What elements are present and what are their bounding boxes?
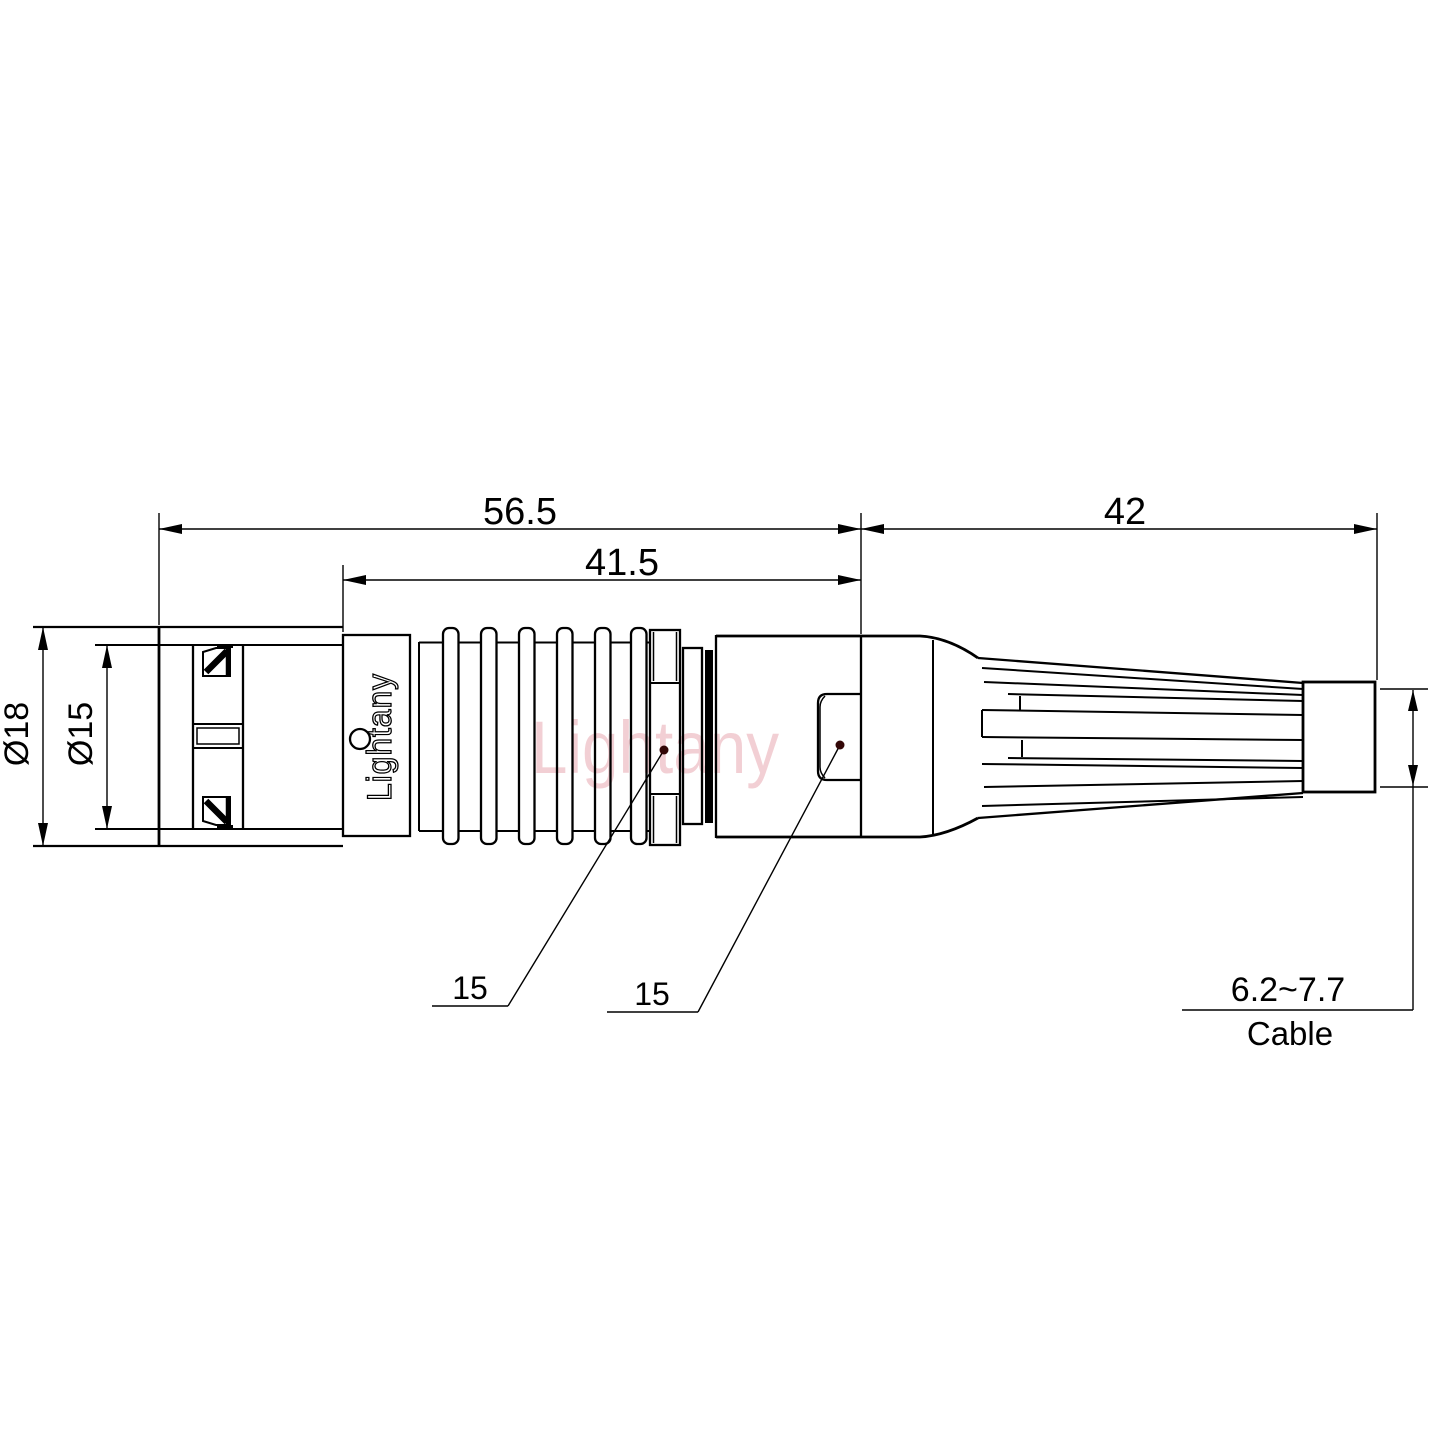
callout-nut-dot	[660, 746, 669, 755]
dim-body-value: 41.5	[585, 542, 659, 584]
cable-label: Cable	[1247, 1015, 1333, 1052]
dim-boot-value: 42	[1104, 491, 1146, 533]
body-brand-label: Lightany	[361, 673, 399, 801]
cable-range-value: 6.2~7.7	[1231, 971, 1345, 1009]
callout-backshell-dot	[836, 741, 845, 750]
connector-engineering-drawing: Lightany Lightany	[0, 0, 1440, 1440]
technical-drawing-page: Lightany Lightany	[0, 0, 1440, 1440]
callout-backshell-value: 15	[634, 976, 670, 1012]
callout-nut-value: 15	[452, 970, 488, 1006]
dim-overall-value: 56.5	[483, 491, 557, 533]
seal-gasket	[705, 650, 713, 823]
dim-inner-diameter-value: Ø15	[62, 702, 100, 766]
dim-outer-diameter-value: Ø18	[0, 702, 36, 766]
watermark-text: Lightany	[531, 706, 779, 789]
